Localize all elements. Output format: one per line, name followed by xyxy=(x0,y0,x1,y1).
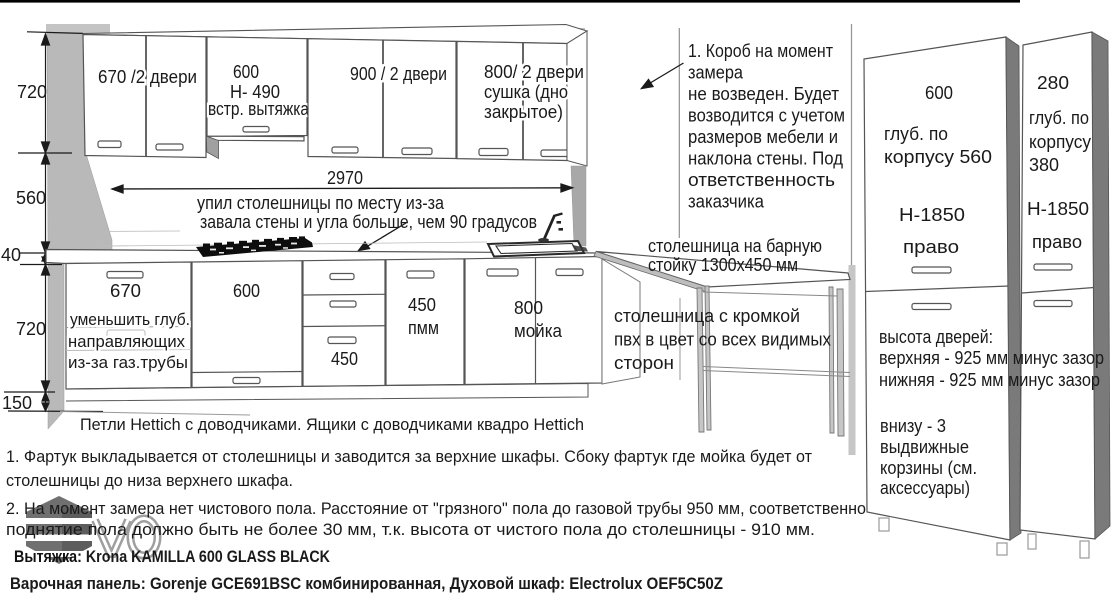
svg-text:корпусу 560: корпусу 560 xyxy=(884,147,992,167)
svg-text:нижняя - 925 мм минус зазор: нижняя - 925 мм минус зазор xyxy=(879,370,1100,390)
svg-text:40: 40 xyxy=(1,245,21,265)
svg-text:600: 600 xyxy=(233,281,260,301)
svg-text:столешница с кромкой: столешница с кромкой xyxy=(614,306,800,326)
svg-text:аксессуары): аксессуары) xyxy=(880,478,970,498)
svg-text:1. Фартук выкладывается от сто: 1. Фартук выкладывается от столешницы и … xyxy=(6,447,812,466)
svg-text:замера: замера xyxy=(688,63,744,83)
svg-text:пвх в цвет со всех видимых: пвх в цвет со всех видимых xyxy=(614,330,831,350)
svg-text:выдвижные: выдвижные xyxy=(880,437,969,457)
svg-text:H-1850: H-1850 xyxy=(1027,199,1089,219)
svg-text:корпусу: корпусу xyxy=(1029,132,1091,152)
svg-text:H-1850: H-1850 xyxy=(899,205,965,225)
svg-text:670: 670 xyxy=(110,281,141,301)
svg-text:380: 380 xyxy=(1029,155,1059,175)
svg-text:800: 800 xyxy=(514,298,543,318)
svg-text:Варочная панель: Gorenje GCE69: Варочная панель: Gorenje GCE691BSC комби… xyxy=(10,574,723,593)
svg-text:столешницы до низа верхнего шк: столешницы до низа верхнего шкафа. xyxy=(6,471,293,490)
svg-text:не возведен. Будет: не возведен. Будет xyxy=(688,84,839,104)
svg-text:верхняя - 925 мм минус зазор: верхняя - 925 мм минус зазор xyxy=(879,348,1104,368)
svg-text:направляющих: направляющих xyxy=(68,332,185,351)
svg-text:упил столешницы по месту из-за: упил столешницы по месту из-за xyxy=(197,193,445,213)
svg-text:поднятие пола должно быть не б: поднятие пола должно быть не более 30 мм… xyxy=(6,520,815,539)
svg-text:пмм: пмм xyxy=(408,318,439,338)
svg-text:670 /2 двери: 670 /2 двери xyxy=(98,67,197,87)
svg-text:Вытяжка: Krona KAMILLA 600 GLA: Вытяжка: Krona KAMILLA 600 GLASS BLACK xyxy=(14,548,330,566)
svg-text:столешница на барную: столешница на барную xyxy=(648,236,822,256)
svg-text:600: 600 xyxy=(925,83,953,103)
svg-text:сушка (дно: сушка (дно xyxy=(484,82,568,102)
svg-text:450: 450 xyxy=(331,349,358,369)
svg-text:2. На момент замера нет чистов: 2. На момент замера нет чистового пола. … xyxy=(6,499,866,518)
svg-text:720: 720 xyxy=(17,82,47,102)
svg-text:наклона стены. Под: наклона стены. Под xyxy=(688,149,843,169)
svg-text:2970: 2970 xyxy=(327,168,363,188)
svg-text:Петли Hettich с доводчиками. Я: Петли Hettich с доводчиками. Ящики с дов… xyxy=(80,415,584,434)
svg-text:150: 150 xyxy=(2,393,32,413)
svg-text:450: 450 xyxy=(408,295,436,315)
svg-text:внизу - 3: внизу - 3 xyxy=(880,416,946,436)
svg-text:сторон: сторон xyxy=(614,353,674,373)
svg-text:право: право xyxy=(903,237,959,257)
svg-text:закрытое): закрытое) xyxy=(484,102,563,122)
svg-text:280: 280 xyxy=(1037,73,1069,93)
svg-text:ответственность: ответственность xyxy=(688,170,835,190)
svg-text:мойка: мойка xyxy=(514,321,563,341)
svg-text:600: 600 xyxy=(233,62,259,82)
svg-text:размеров мебели и: размеров мебели и xyxy=(688,127,838,147)
svg-text:уменьшить глуб.: уменьшить глуб. xyxy=(70,310,190,329)
svg-text:900 / 2 двери: 900 / 2 двери xyxy=(350,64,447,84)
svg-text:из-за газ.трубы: из-за газ.трубы xyxy=(68,353,188,372)
svg-text:стойку 1300х450 мм: стойку 1300х450 мм xyxy=(648,255,798,275)
svg-text:возводится с учетом: возводится с учетом xyxy=(688,106,845,126)
svg-text:завала стены и угла больше, че: завала стены и угла больше, чем 90 граду… xyxy=(200,212,537,232)
svg-text:право: право xyxy=(1032,232,1082,252)
svg-text:глуб. по: глуб. по xyxy=(884,124,948,144)
svg-text:глуб. по: глуб. по xyxy=(1029,108,1089,128)
svg-text:высота дверей:: высота дверей: xyxy=(879,327,993,347)
svg-text:800/ 2 двери: 800/ 2 двери xyxy=(484,62,584,82)
svg-text:560: 560 xyxy=(16,188,46,208)
svg-text:1. Короб на момент: 1. Короб на момент xyxy=(688,41,833,61)
svg-text:встр. вытяжка: встр. вытяжка xyxy=(208,99,310,119)
svg-text:заказчика: заказчика xyxy=(688,192,765,212)
svg-text:720: 720 xyxy=(16,319,46,339)
svg-text:корзины (см.: корзины (см. xyxy=(880,458,977,478)
